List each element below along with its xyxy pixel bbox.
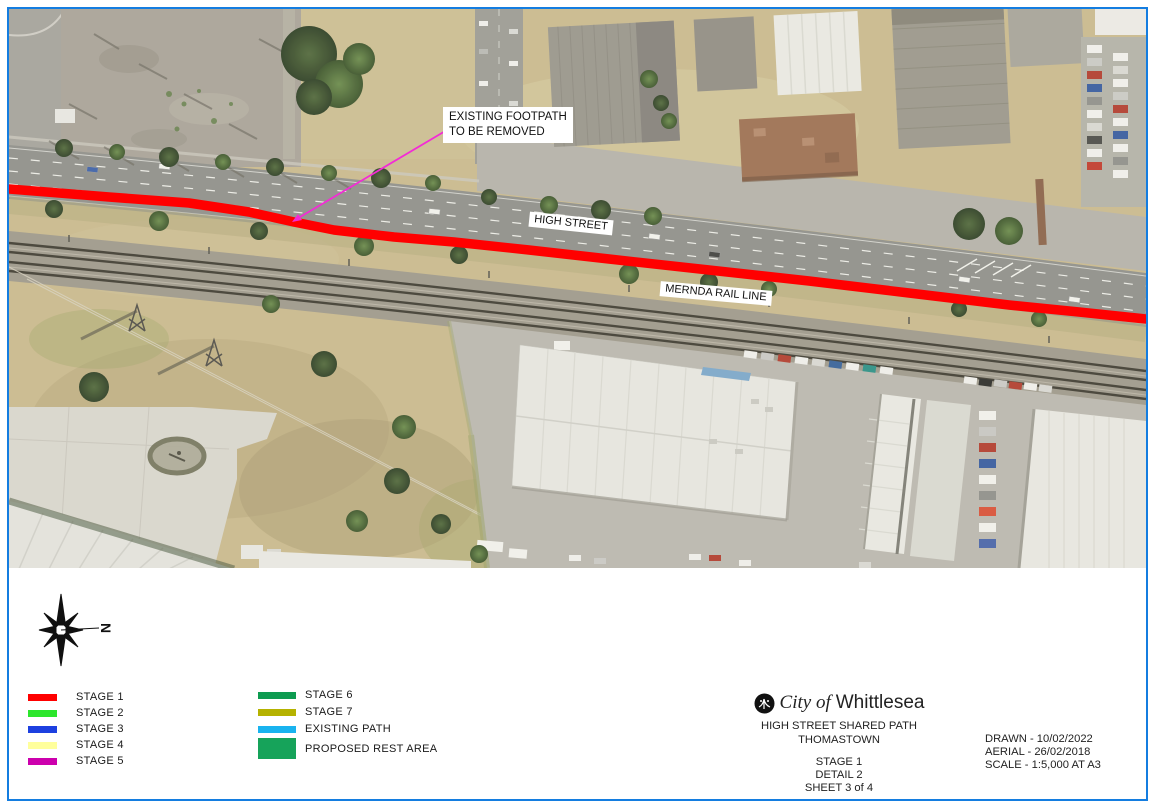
north-compass: N	[17, 585, 127, 675]
legend-label: EXISTING PATH	[305, 723, 391, 735]
sheet-border: EXISTING FOOTPATH TO BE REMOVED HIGH STR…	[7, 7, 1148, 801]
legend-label: STAGE 2	[76, 707, 124, 719]
callout-existing-footpath: EXISTING FOOTPATH TO BE REMOVED	[443, 107, 573, 143]
agency-name: Whittlesea	[836, 692, 925, 714]
legend-item-stage4: STAGE 4	[28, 738, 124, 752]
stage5-swatch	[28, 758, 57, 765]
stage4-swatch	[28, 742, 57, 749]
legend-label: STAGE 6	[305, 689, 353, 701]
legend-item-stage5: STAGE 5	[28, 754, 124, 768]
north-letter: N	[98, 623, 114, 633]
city-of-whittlesea-logo	[754, 693, 775, 714]
scale-note: SCALE - 1:5,000 AT A3	[985, 759, 1101, 772]
callout-line-2: TO BE REMOVED	[449, 125, 567, 140]
aerial-date: AERIAL - 26/02/2018	[985, 746, 1101, 759]
project-title-line1: HIGH STREET SHARED PATH	[679, 719, 999, 733]
stage1-swatch	[28, 694, 57, 701]
legend-item-stage2: STAGE 2	[28, 706, 124, 720]
stage7-swatch	[258, 709, 296, 716]
stage6-swatch	[258, 692, 296, 699]
stage3-swatch	[28, 726, 57, 733]
agency-prefix: City of	[780, 692, 831, 714]
legend-label: STAGE 3	[76, 723, 124, 735]
legend-label: STAGE 1	[76, 691, 124, 703]
legend-item-rest-area: PROPOSED REST AREA	[258, 738, 437, 759]
project-title-line2: THOMASTOWN	[679, 733, 999, 747]
aerial-map: EXISTING FOOTPATH TO BE REMOVED HIGH STR…	[9, 9, 1146, 568]
drawn-date: DRAWN - 10/02/2022	[985, 733, 1101, 746]
meta-block: DRAWN - 10/02/2022 AERIAL - 26/02/2018 S…	[985, 733, 1101, 772]
rest-area-swatch	[258, 738, 296, 759]
legend-item-stage3: STAGE 3	[28, 722, 124, 736]
callout-line-1: EXISTING FOOTPATH	[449, 110, 567, 125]
legend-label: STAGE 7	[305, 706, 353, 718]
stage2-swatch	[28, 710, 57, 717]
legend-item-stage7: STAGE 7	[258, 705, 353, 719]
aerial-photo	[9, 9, 1146, 568]
legend-label: STAGE 4	[76, 739, 124, 751]
stage-line: STAGE 1	[679, 756, 999, 769]
existing-path-swatch	[258, 726, 296, 733]
agency-row: City of Whittlesea	[679, 691, 999, 715]
sheet-line: SHEET 3 of 4	[679, 782, 999, 795]
legend-item-stage6: STAGE 6	[258, 688, 353, 702]
legend-label: PROPOSED REST AREA	[305, 743, 437, 755]
legend-item-stage1: STAGE 1	[28, 690, 124, 704]
detail-line: DETAIL 2	[679, 769, 999, 782]
legend-label: STAGE 5	[76, 755, 124, 767]
legend-item-existing-path: EXISTING PATH	[258, 722, 391, 736]
title-block: City of Whittlesea HIGH STREET SHARED PA…	[679, 691, 999, 795]
plan-sheet: EXISTING FOOTPATH TO BE REMOVED HIGH STR…	[0, 0, 1155, 808]
